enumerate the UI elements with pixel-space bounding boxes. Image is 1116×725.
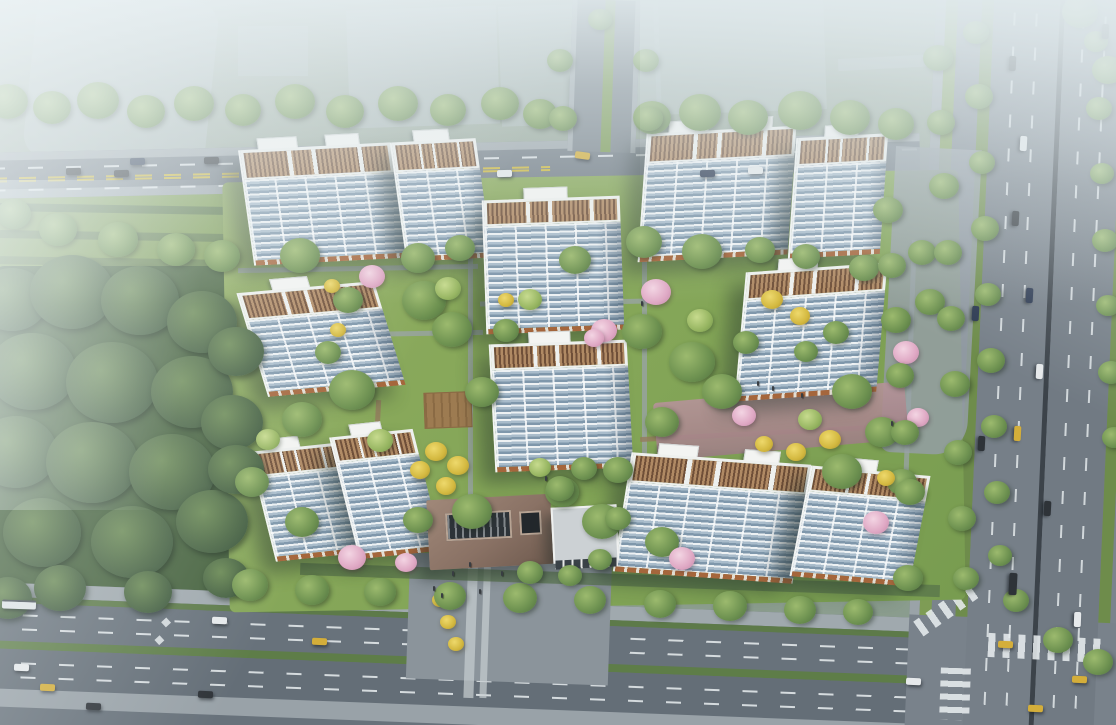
pedestrian [433, 586, 435, 591]
pedestrian [479, 589, 481, 594]
pedestrian [757, 381, 759, 386]
pedestrian [772, 386, 774, 391]
pedestrian [501, 571, 503, 576]
pedestrian [545, 476, 547, 481]
pedestrians-layer [0, 0, 1116, 725]
pedestrian [641, 301, 643, 306]
aerial-render-canvas [0, 0, 1116, 725]
pedestrian [452, 571, 454, 576]
pedestrian [801, 393, 803, 398]
pedestrian [891, 421, 893, 426]
pedestrian [441, 593, 443, 598]
pedestrian [469, 562, 471, 567]
